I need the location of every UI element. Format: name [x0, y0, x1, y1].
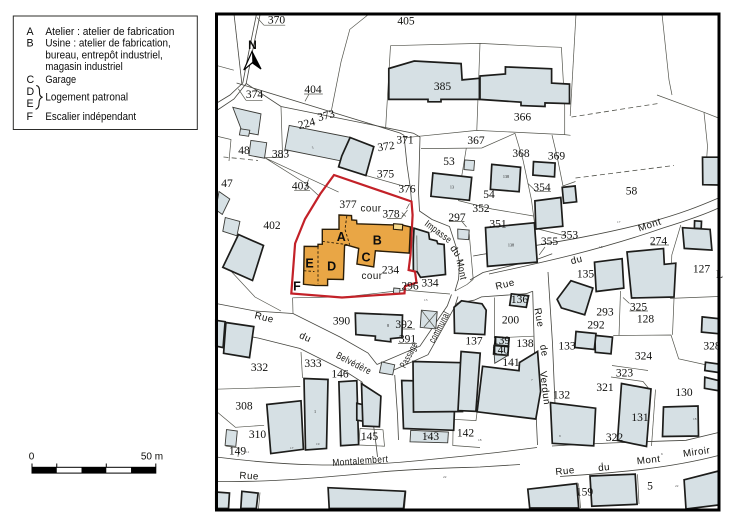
svg-text:138: 138: [508, 243, 514, 248]
svg-text:368: 368: [512, 148, 530, 160]
svg-text:371: 371: [396, 135, 414, 147]
svg-text:369: 369: [548, 151, 566, 163]
svg-text:C: C: [361, 250, 370, 264]
svg-text:A: A: [337, 230, 346, 244]
svg-text:Atelier : atelier de fabricati: Atelier : atelier de fabrication: [45, 26, 174, 38]
svg-text:324: 324: [635, 351, 653, 363]
svg-text:274: 274: [650, 236, 668, 248]
svg-text:137: 137: [465, 336, 483, 348]
svg-text:15: 15: [599, 245, 603, 249]
svg-text:132: 132: [553, 390, 571, 402]
svg-text:N: N: [248, 38, 257, 52]
svg-text:376: 376: [398, 184, 416, 196]
svg-text:47: 47: [221, 178, 233, 190]
svg-text:135: 135: [577, 269, 595, 281]
svg-text:F: F: [27, 111, 34, 123]
svg-text:392: 392: [395, 319, 413, 331]
svg-text:136: 136: [511, 294, 529, 306]
svg-text:141: 141: [502, 357, 520, 369]
svg-text:53: 53: [443, 156, 455, 168]
svg-text:334: 334: [421, 278, 439, 290]
svg-text:323: 323: [616, 368, 634, 380]
svg-text:325: 325: [630, 302, 648, 314]
svg-text:4: 4: [601, 461, 603, 465]
svg-text:375: 375: [377, 169, 395, 181]
svg-text:146: 146: [331, 369, 349, 381]
svg-text:9: 9: [559, 434, 561, 438]
svg-text:131: 131: [631, 412, 649, 424]
svg-text:138: 138: [516, 338, 534, 350]
svg-text:19: 19: [316, 442, 320, 446]
svg-text:18: 18: [478, 438, 482, 442]
svg-text:Rue: Rue: [555, 465, 576, 478]
svg-text:234: 234: [382, 265, 400, 277]
svg-text:133: 133: [558, 341, 576, 353]
svg-text:142: 142: [457, 428, 475, 440]
svg-text:de: de: [537, 344, 550, 358]
svg-text:149: 149: [229, 446, 247, 458]
svg-text:22: 22: [675, 484, 679, 488]
svg-text:54: 54: [483, 189, 495, 201]
svg-text:1: 1: [314, 409, 316, 414]
svg-text:18: 18: [693, 417, 697, 421]
svg-text:145: 145: [361, 431, 379, 443]
svg-text:Garage: Garage: [45, 74, 76, 86]
svg-text:159: 159: [576, 487, 594, 499]
svg-text:Usine : atelier de fabrication: Usine : atelier de fabrication,: [45, 38, 170, 50]
svg-text:292: 292: [587, 320, 605, 332]
svg-text:297: 297: [448, 212, 466, 224]
svg-text:A: A: [27, 26, 35, 38]
svg-text:351: 351: [489, 219, 507, 231]
svg-text:0: 0: [29, 452, 35, 463]
svg-text:405: 405: [397, 16, 415, 28]
svg-text:8: 8: [387, 323, 389, 328]
svg-text:402: 402: [263, 220, 281, 232]
svg-text:58: 58: [626, 186, 638, 198]
svg-text:374: 374: [246, 89, 264, 101]
svg-text:140: 140: [492, 345, 510, 357]
svg-text:D: D: [27, 86, 35, 98]
svg-text:378: 378: [382, 209, 400, 221]
svg-text:128: 128: [637, 314, 655, 326]
svg-text:Escalier indépendant: Escalier indépendant: [45, 111, 136, 123]
svg-text:50 m: 50 m: [141, 452, 163, 463]
svg-text:332: 332: [251, 362, 269, 374]
svg-text:cour: cour: [361, 271, 382, 282]
svg-text:magasin industriel: magasin industriel: [45, 61, 122, 73]
svg-text:138: 138: [503, 174, 509, 179]
svg-text:296: 296: [401, 281, 419, 293]
svg-text:200: 200: [502, 315, 520, 327]
svg-text:403: 403: [292, 181, 310, 193]
svg-text:310: 310: [249, 429, 267, 441]
svg-text:7: 7: [531, 378, 533, 382]
svg-text:6: 6: [661, 452, 663, 456]
svg-text:308: 308: [235, 401, 253, 413]
svg-text:13: 13: [424, 298, 428, 302]
svg-text:17: 17: [290, 446, 294, 450]
svg-text:333: 333: [304, 358, 322, 370]
svg-text:22: 22: [443, 475, 447, 479]
svg-text:372: 372: [377, 140, 396, 154]
svg-text:13: 13: [450, 185, 454, 190]
svg-text:17: 17: [617, 220, 621, 224]
svg-text:du: du: [598, 462, 611, 474]
svg-text:322: 322: [606, 432, 624, 444]
svg-text:Rue: Rue: [239, 471, 259, 483]
svg-text:390: 390: [333, 316, 351, 328]
svg-text:353: 353: [561, 230, 579, 242]
svg-text:cour: cour: [360, 204, 381, 215]
svg-text:383: 383: [272, 149, 290, 161]
svg-text:bureau, entrepôt industriel,: bureau, entrepôt industriel,: [45, 49, 162, 61]
svg-text:377: 377: [339, 199, 357, 211]
svg-text:48: 48: [238, 145, 250, 157]
svg-text:5: 5: [647, 481, 653, 493]
svg-text:21: 21: [360, 438, 364, 442]
svg-text:293: 293: [596, 307, 614, 319]
svg-text:366: 366: [514, 112, 532, 124]
svg-text:F: F: [293, 279, 301, 293]
svg-text:B: B: [373, 234, 382, 248]
svg-text:C: C: [27, 74, 35, 86]
svg-text:130: 130: [675, 387, 693, 399]
svg-text:D: D: [327, 259, 336, 273]
svg-text:E: E: [27, 98, 34, 110]
svg-text:352: 352: [472, 203, 490, 215]
svg-text:23: 23: [425, 434, 429, 438]
svg-text:321: 321: [596, 382, 614, 394]
svg-text:127: 127: [693, 264, 711, 276]
svg-text:Logement patronal: Logement patronal: [45, 92, 128, 104]
svg-text:11: 11: [246, 450, 250, 454]
svg-text:B: B: [27, 38, 34, 50]
svg-text:370: 370: [268, 15, 286, 27]
svg-text:354: 354: [533, 182, 551, 194]
svg-text:367: 367: [467, 135, 485, 147]
svg-text:355: 355: [541, 236, 559, 248]
svg-text:404: 404: [304, 84, 322, 96]
svg-text:385: 385: [434, 81, 452, 93]
svg-text:E: E: [305, 256, 313, 270]
